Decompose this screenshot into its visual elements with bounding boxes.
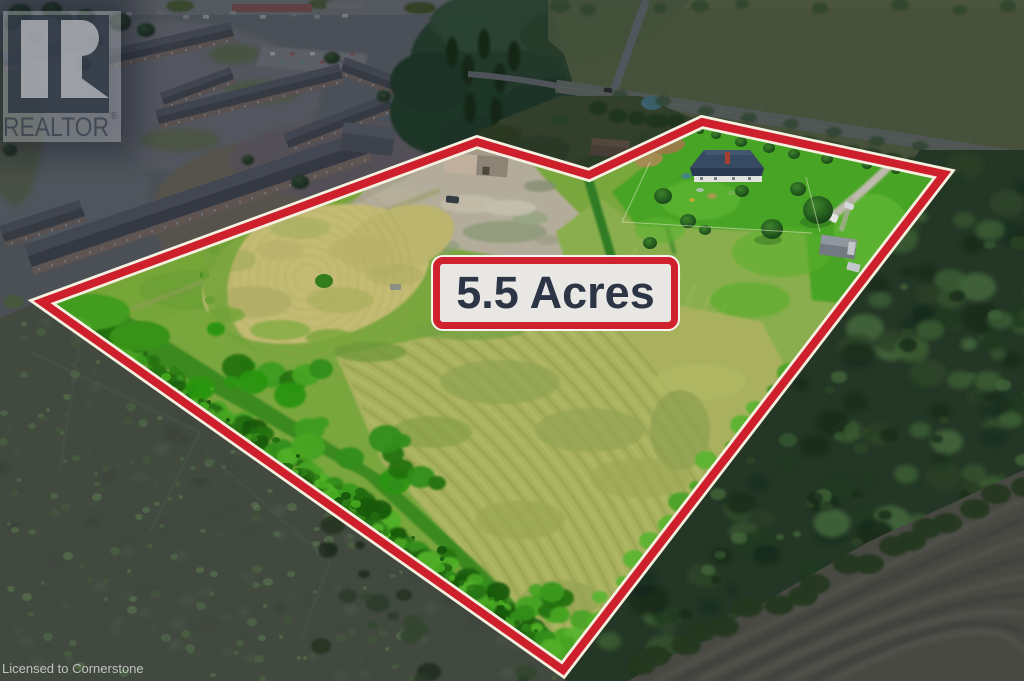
svg-text:®: ® [110,111,118,122]
svg-text:REALTOR: REALTOR [3,112,109,142]
